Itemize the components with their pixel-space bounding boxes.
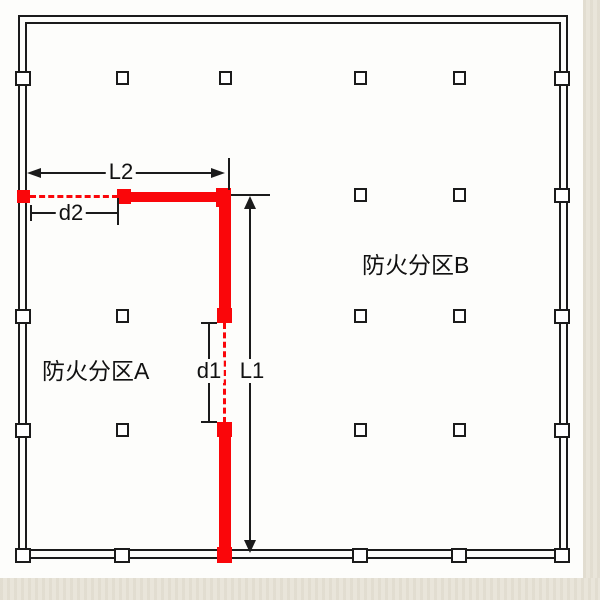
firewall-node-square: [217, 308, 232, 323]
zone-a-label: 防火分区A: [42, 358, 149, 384]
column: [451, 548, 467, 563]
firewall-node-square: [216, 188, 231, 207]
dim-l1-arrow-up-icon: [244, 196, 256, 209]
dim-d1-tick-bottom: [201, 421, 217, 423]
firewall-horizontal-bar: [120, 192, 231, 202]
column: [453, 188, 466, 202]
column: [15, 309, 31, 324]
column: [453, 309, 466, 323]
dim-l2-label: L2: [106, 160, 136, 184]
column: [554, 71, 570, 86]
firewall-node-square: [217, 422, 232, 437]
dim-d2-tick-left: [30, 205, 32, 221]
dim-d1-label: d1: [194, 359, 224, 383]
column: [116, 423, 129, 437]
column: [354, 423, 367, 437]
firewall-dashed-horizontal: [30, 195, 118, 198]
dim-l1-arrow-down-icon: [244, 540, 256, 553]
column: [554, 309, 570, 324]
column: [114, 548, 130, 563]
dim-d1-tick-top: [201, 322, 217, 324]
dim-l1-extension-line: [231, 194, 270, 196]
column: [453, 71, 466, 85]
column: [116, 71, 129, 85]
column: [15, 423, 31, 438]
column: [554, 423, 570, 438]
column: [116, 309, 129, 323]
dim-l2-extension-line: [228, 158, 230, 190]
floor-plan-diagram: L2 d2 d1 L1 防火分区A 防火分区B: [0, 0, 600, 600]
dim-d2-tick-right: [117, 198, 119, 225]
column: [354, 188, 367, 202]
column: [354, 309, 367, 323]
column: [354, 71, 367, 85]
column: [15, 71, 31, 86]
firewall-vertical-bar-upper: [219, 196, 231, 312]
dim-l2-arrow-right-icon: [211, 168, 225, 178]
zone-b-label: 防火分区B: [362, 252, 469, 278]
dim-d2-label: d2: [56, 201, 86, 225]
dim-l2-arrow-left-icon: [27, 168, 41, 178]
column: [15, 548, 31, 563]
column: [219, 71, 232, 85]
inner-wall-line: [25, 22, 561, 551]
column: [453, 423, 466, 437]
column: [352, 548, 368, 563]
firewall-node-square: [117, 189, 131, 204]
column: [554, 188, 570, 203]
page-margin-bottom: [0, 578, 600, 600]
firewall-vertical-bar-lower: [219, 434, 231, 556]
firewall-node-square: [17, 190, 30, 203]
page-margin-right: [583, 0, 600, 600]
column: [554, 548, 570, 563]
firewall-node-square: [217, 547, 232, 563]
dim-l1-label: L1: [237, 359, 267, 383]
